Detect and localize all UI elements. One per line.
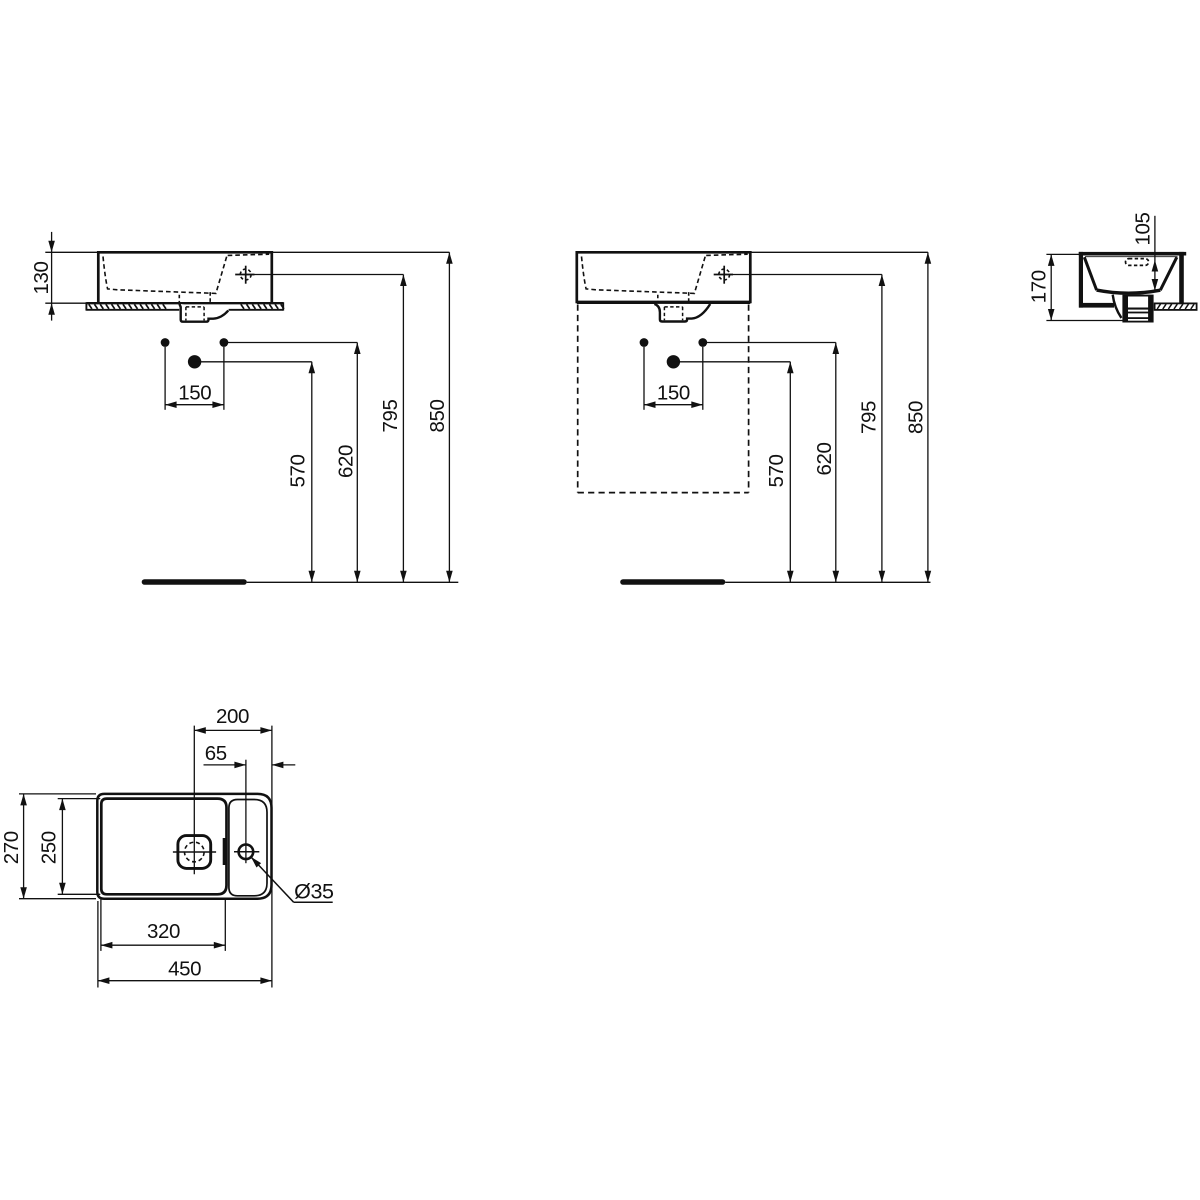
svg-text:570: 570 bbox=[765, 454, 788, 487]
svg-text:570: 570 bbox=[287, 454, 310, 487]
svg-text:170: 170 bbox=[1027, 270, 1050, 303]
svg-text:620: 620 bbox=[334, 445, 357, 478]
svg-text:850: 850 bbox=[905, 401, 928, 434]
svg-text:65: 65 bbox=[205, 742, 227, 765]
svg-text:620: 620 bbox=[813, 442, 836, 475]
svg-text:Ø35: Ø35 bbox=[294, 880, 334, 904]
svg-text:270: 270 bbox=[0, 831, 23, 864]
svg-text:320: 320 bbox=[147, 920, 180, 943]
svg-text:150: 150 bbox=[657, 382, 690, 405]
svg-text:795: 795 bbox=[379, 399, 402, 432]
svg-text:850: 850 bbox=[426, 399, 449, 432]
svg-text:200: 200 bbox=[216, 705, 249, 728]
svg-text:795: 795 bbox=[858, 401, 881, 434]
svg-text:130: 130 bbox=[30, 261, 53, 294]
svg-text:150: 150 bbox=[178, 382, 211, 405]
svg-text:250: 250 bbox=[38, 831, 61, 864]
svg-text:450: 450 bbox=[168, 958, 201, 981]
svg-text:105: 105 bbox=[1132, 212, 1155, 245]
